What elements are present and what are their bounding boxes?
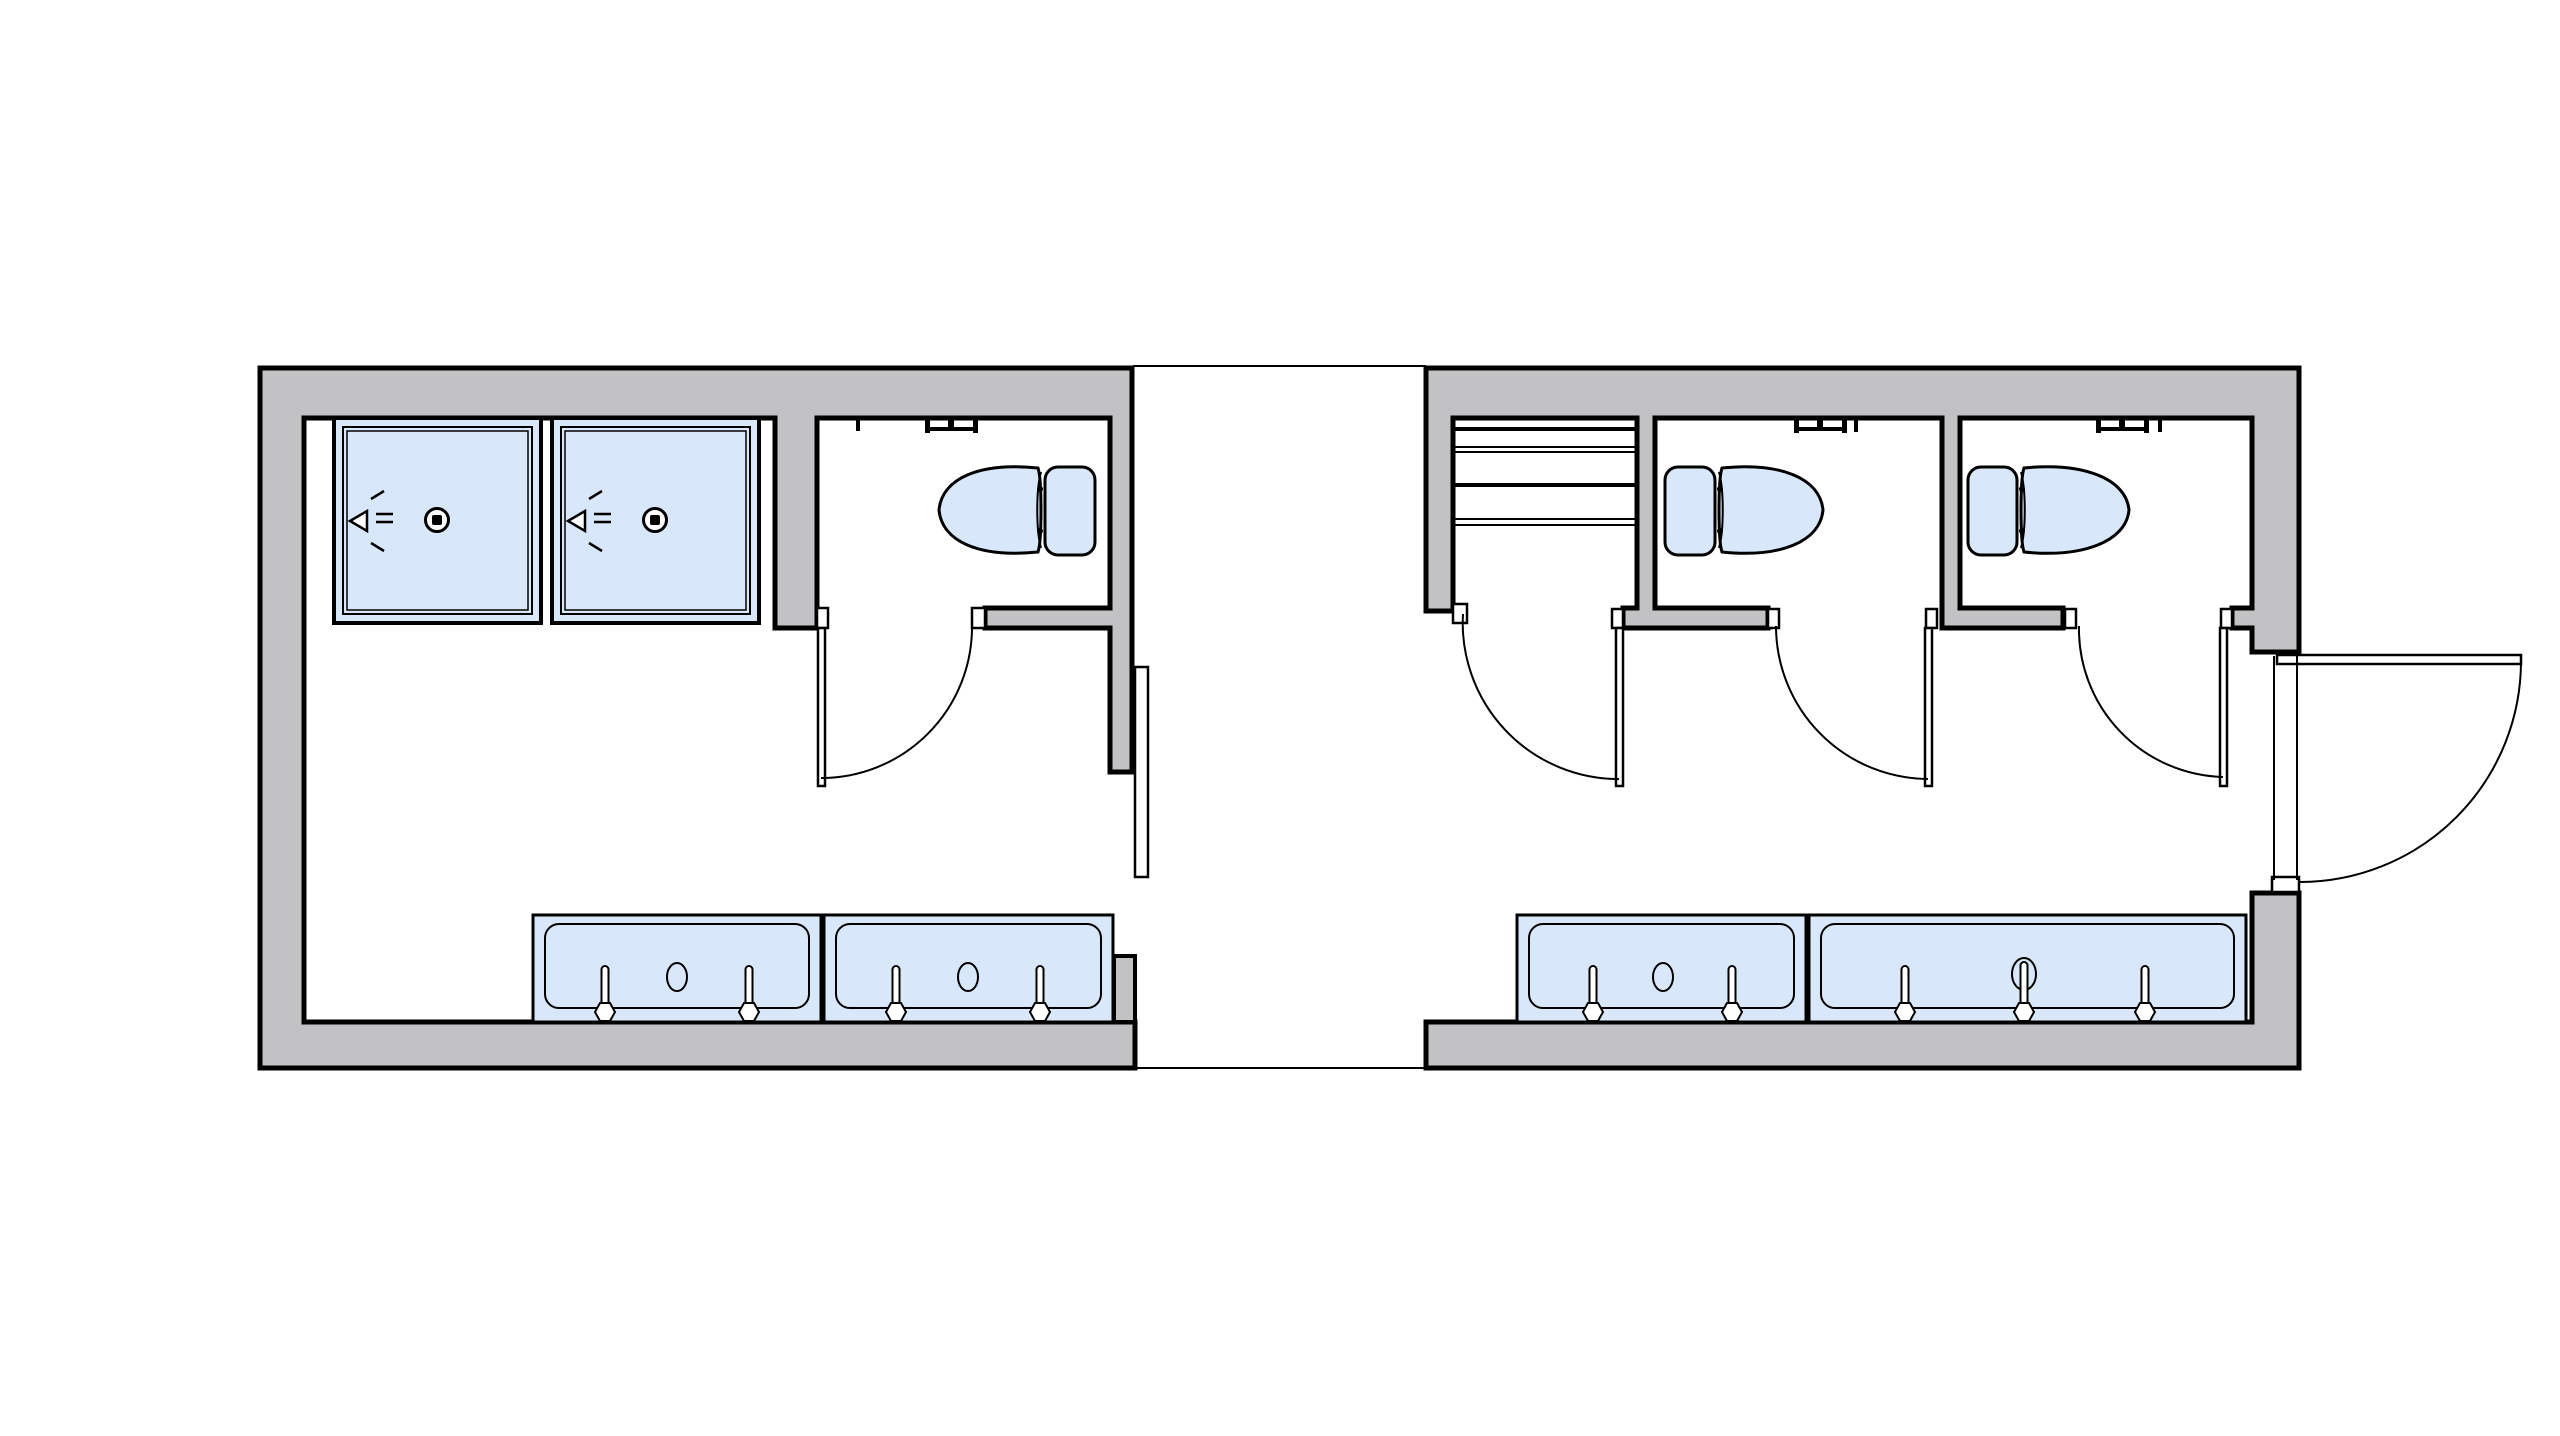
toilet-hinge-dot [2019,528,2025,534]
wall-hook-icon [2158,418,2162,432]
door-jamb [972,608,985,628]
sink-counter-left [533,915,1113,1022]
sink-counter-right [1517,915,2246,1022]
sink-unit [824,915,1113,1022]
door-leaf-exterior [2277,655,2521,664]
door-jamb [1612,609,1623,628]
door-leaf-shelving-room [1616,628,1623,786]
floor-plan-canvas [0,0,2560,1436]
toilet-hinge-dot [1717,528,1723,534]
floor-drain-grate [432,515,442,525]
toilet-right-building-2 [1968,467,2129,555]
floor-drain-grate [650,515,660,525]
door-jamb [1926,609,1937,628]
sliding-door-leaf-left-entry [1135,667,1148,877]
door-jamb [2065,609,2076,628]
toilet-left-building [939,467,1095,555]
door-jamb [1453,604,1467,623]
door-jamb [817,608,828,628]
door-leaf-toilet-room-1 [1925,628,1932,786]
toilet-hinge-dot [2019,486,2025,492]
wall-hook-icon [1854,418,1858,432]
toilet-right-building-1 [1665,467,1823,555]
shower-stall-2 [552,418,759,623]
floor-plan [0,0,2560,1436]
wall-hook-icon [856,418,860,431]
sink-unit [533,915,821,1022]
toilet-hinge-dot [1037,486,1043,492]
sink-unit [1517,915,1806,1022]
door-jamb [2221,609,2232,628]
door-leaf-toilet-room-2 [2220,628,2227,786]
toilet-hinge-dot [1717,486,1723,492]
toilet-tank [1665,467,1715,555]
door-jamb [2272,877,2299,892]
toilet-hinge-dot [1037,528,1043,534]
toilet-tank [1968,467,2017,555]
toilet-tank [1045,467,1095,555]
counter-end-panel [1114,956,1135,1022]
background [0,0,2560,1436]
door-jamb [1768,609,1779,628]
door-leaf-toilet-room-left [818,628,825,786]
shower-stall-1 [334,418,541,623]
